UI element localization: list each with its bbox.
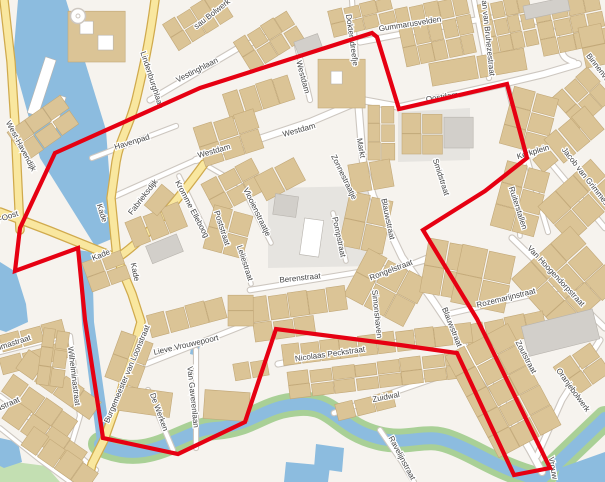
tank-landmark bbox=[71, 9, 86, 24]
map-canvas[interactable]: sau BolwerkLindenburghlaanVestinghlaanHa… bbox=[0, 0, 605, 482]
map-viewport[interactable]: sau BolwerkLindenburghlaanVestinghlaanHa… bbox=[0, 0, 605, 482]
